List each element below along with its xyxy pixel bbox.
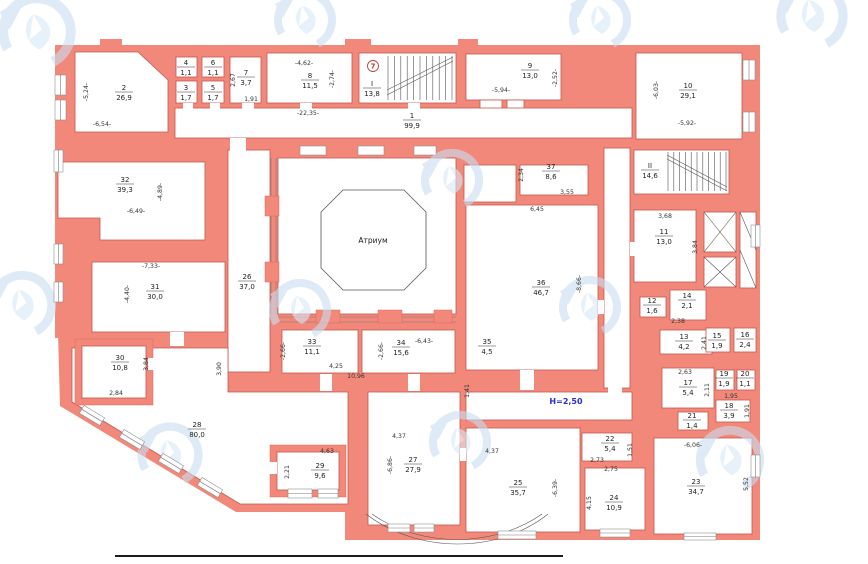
room-number: 31 <box>151 283 160 291</box>
dim-label: 2,34 <box>518 168 525 182</box>
door-opening <box>268 462 277 474</box>
room-number: 17 <box>684 379 693 387</box>
room-area: 1,1 <box>207 69 218 77</box>
room-number: 20 <box>741 370 750 378</box>
room-area: 1,1 <box>739 380 750 388</box>
dim-label: 4,63 <box>320 448 334 455</box>
room-number: I <box>371 80 373 88</box>
dim-label: 6,45 <box>530 206 544 213</box>
room-number: 24 <box>610 494 619 502</box>
room-number: 12 <box>648 297 657 305</box>
room-area: 1,7 <box>180 94 191 102</box>
room-33 <box>282 330 358 373</box>
room-area: 30,0 <box>147 293 163 301</box>
room-area: 29,1 <box>680 92 696 100</box>
door-opening <box>460 448 466 461</box>
door-opening <box>320 374 332 391</box>
duct-shaft <box>740 212 756 288</box>
room-area: 1,1 <box>180 69 191 77</box>
room-number: 2 <box>122 84 126 92</box>
room-area: 35,7 <box>510 489 526 497</box>
dim-label: 2,41 <box>701 336 708 350</box>
room-number: 4 <box>184 59 189 67</box>
room-area: 46,7 <box>533 289 549 297</box>
room-area: 13,0 <box>522 72 538 80</box>
room-area: 1,6 <box>646 307 658 315</box>
room-area: 5,4 <box>682 389 694 397</box>
dim-label: -8,66- <box>576 275 583 293</box>
room-number: 16 <box>741 331 750 339</box>
room-number: 13 <box>680 333 689 341</box>
watermark <box>770 0 855 58</box>
room-number: 11 <box>660 228 669 236</box>
room-number: 25 <box>514 479 523 487</box>
room-number: 22 <box>606 435 615 443</box>
room-number: 19 <box>720 370 729 378</box>
room-number: 18 <box>725 402 734 410</box>
dim-label: -6,06- <box>684 442 702 449</box>
dim-label: 2,73 <box>590 457 604 464</box>
room-11 <box>634 210 696 282</box>
door-opening <box>408 103 420 109</box>
dim-label: 1,41 <box>464 384 471 398</box>
dim-label: 2,38 <box>671 318 685 325</box>
dim-label: -2,52- <box>552 69 559 87</box>
room-area: 2,1 <box>681 302 692 310</box>
door-opening <box>230 138 246 151</box>
room-area: 10,8 <box>112 364 128 372</box>
room-number: 28 <box>193 421 202 429</box>
room-number: 9 <box>528 62 532 70</box>
dim-label: -7,33- <box>142 263 160 270</box>
room-number: 34 <box>397 339 406 347</box>
room-area: 1,7 <box>207 94 218 102</box>
height-note: Н=2,50 <box>549 397 583 406</box>
dim-label: 2,11 <box>704 383 711 397</box>
door-opening <box>520 370 534 390</box>
room-area: 15,6 <box>393 349 409 357</box>
dim-label: 4,25 <box>329 363 343 370</box>
dim-label: 1,51 <box>627 443 634 457</box>
room-area: 99,9 <box>404 122 420 130</box>
dim-label: -2,66- <box>378 342 385 360</box>
room-number: 36 <box>537 279 546 287</box>
room-number: 6 <box>211 59 216 67</box>
floor-plan-page: Атриум 7 Н=2,50 199,9226,931,741,151,761… <box>0 0 868 564</box>
door-opening <box>608 384 622 394</box>
room-area: 1,4 <box>686 422 698 430</box>
dim-label: -6,43- <box>415 338 433 345</box>
dim-label: -4,40- <box>124 285 131 303</box>
room-number: 23 <box>692 478 701 486</box>
room-area: 3,9 <box>723 412 734 420</box>
room-area: 11,5 <box>302 82 318 90</box>
room-area: 4,5 <box>481 348 492 356</box>
room-number: 27 <box>409 456 418 464</box>
dim-label: -6,86- <box>387 456 394 474</box>
room-area: 13,8 <box>364 90 380 98</box>
room-number: 37 <box>547 163 556 171</box>
dim-label: -6,39- <box>552 479 559 497</box>
dim-label: -5,92- <box>678 120 696 127</box>
dim-label: 2,75 <box>604 466 618 473</box>
room-area: 11,1 <box>304 348 320 356</box>
dim-label: -5,24- <box>83 83 90 101</box>
door-opening <box>300 103 312 109</box>
dim-label: 3,84 <box>143 357 150 371</box>
room-area: 2,4 <box>739 341 751 349</box>
room-number: II <box>648 162 652 170</box>
room-area: 27,9 <box>405 466 421 474</box>
door-opening <box>242 103 254 109</box>
room-number: 35 <box>483 338 492 346</box>
door-opening <box>630 242 635 256</box>
room-area: 26,9 <box>116 94 132 102</box>
dim-label: -5,94- <box>492 87 510 94</box>
room-area: 8,6 <box>545 173 557 181</box>
room-area: 34,7 <box>688 488 704 496</box>
dim-label: -2,74- <box>329 70 336 88</box>
door-opening <box>408 374 420 391</box>
dim-label: 1,95 <box>724 393 738 400</box>
room-area: 1,9 <box>711 342 722 350</box>
dim-label: 2,67 <box>230 73 237 87</box>
atrium-label: Атриум <box>358 236 387 245</box>
room-9 <box>466 54 561 100</box>
dim-label: -6,49- <box>127 208 145 215</box>
room-number: 32 <box>121 176 130 184</box>
door-opening <box>210 103 220 109</box>
room-area: 37,0 <box>239 283 255 291</box>
door-opening <box>183 103 193 109</box>
room-area: 10,9 <box>606 504 622 512</box>
room-number: 3 <box>184 84 188 92</box>
dim-label: 4,37 <box>485 448 499 455</box>
room-number: 21 <box>688 412 697 420</box>
room-number: 30 <box>116 354 125 362</box>
dim-label: -4,89- <box>157 183 164 201</box>
room-area: 13,0 <box>656 238 672 246</box>
watermark <box>0 264 63 345</box>
room-area: 5,4 <box>604 445 616 453</box>
door-opening <box>170 332 184 346</box>
room-number: 15 <box>713 332 722 340</box>
floor-plan-svg: Атриум 7 Н=2,50 199,9226,931,741,151,761… <box>0 0 868 564</box>
dim-label: 2,63 <box>678 369 692 376</box>
room-number: 14 <box>683 292 692 300</box>
dim-label: 3,90 <box>216 362 223 376</box>
room-area: 1,9 <box>718 380 729 388</box>
room-number: 8 <box>308 72 312 80</box>
dim-label: 5,52 <box>743 477 750 491</box>
room-number: 26 <box>243 273 252 281</box>
dim-label: -6,03- <box>653 81 660 99</box>
room-number: 5 <box>211 84 215 92</box>
room-number: 7 <box>244 69 248 77</box>
dim-label: 2,21 <box>284 465 291 479</box>
dim-label: -6,54- <box>93 121 111 128</box>
dim-label: 3,68 <box>658 213 672 220</box>
dim-label: 10,96 <box>347 373 365 380</box>
dim-label: 1,91 <box>744 404 751 418</box>
dim-label: 4,37 <box>392 433 406 440</box>
room-area: 4,2 <box>678 343 689 351</box>
dim-label: -22,35- <box>297 110 319 117</box>
room-area: 14,6 <box>642 172 658 180</box>
dim-label: -2,66- <box>280 342 287 360</box>
dim-label: 3,84 <box>692 240 699 254</box>
stair-number: 7 <box>371 63 376 71</box>
corridor-26 <box>228 150 270 372</box>
dim-label: 2,84 <box>109 390 123 397</box>
room-number: 29 <box>316 462 325 470</box>
corridor-right <box>604 148 630 388</box>
room-area: 3,7 <box>240 79 251 87</box>
dim-label: -4,62- <box>295 60 313 67</box>
dim-label: 4,15 <box>586 496 593 510</box>
room-area: 9,6 <box>314 472 326 480</box>
room-area: 80,0 <box>189 431 205 439</box>
room-number: 33 <box>308 338 317 346</box>
room-area: 39,3 <box>117 186 133 194</box>
door-opening <box>598 300 604 314</box>
dim-label: 1,91 <box>244 96 258 103</box>
room-number: 1 <box>410 112 414 120</box>
dim-label: 3,55 <box>560 189 574 196</box>
room-number: 10 <box>684 82 693 90</box>
